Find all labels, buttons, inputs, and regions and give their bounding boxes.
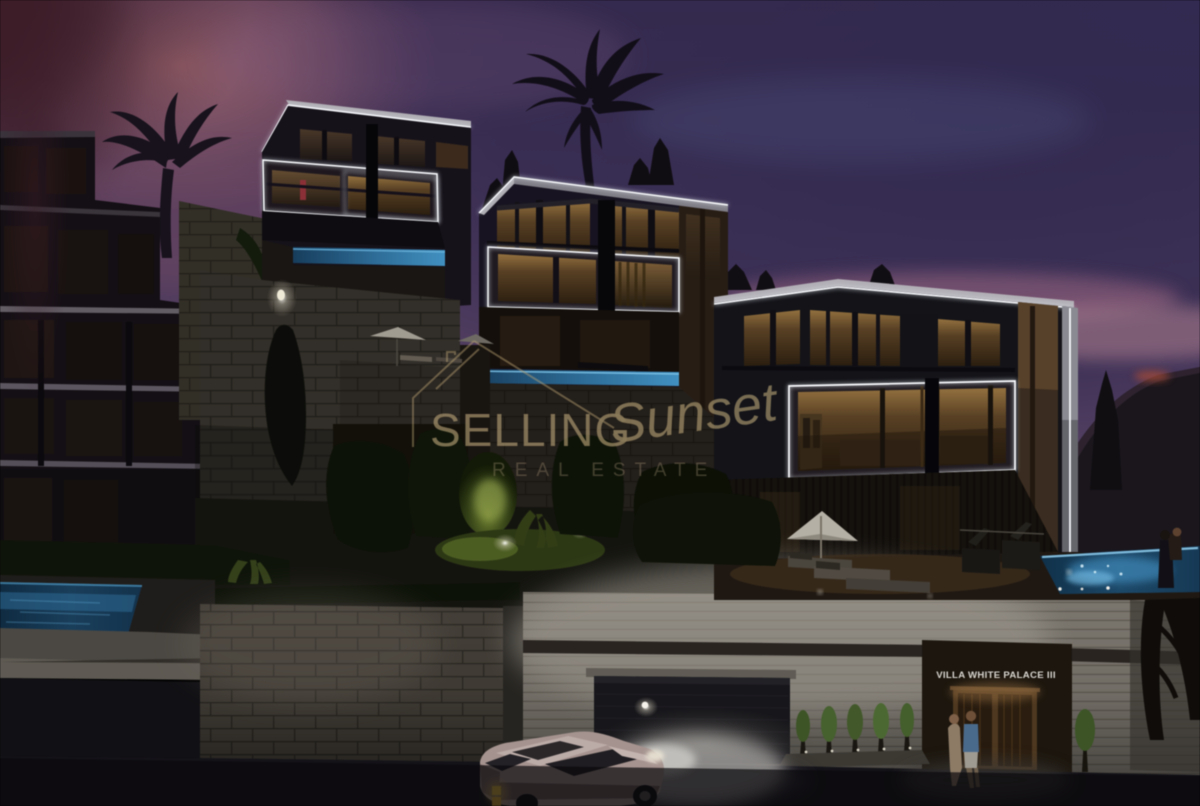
svg-text:REAL ESTATE: REAL ESTATE	[492, 460, 716, 481]
svg-text:SELLING: SELLING	[430, 404, 631, 456]
svg-text:VILLA WHITE PALACE III: VILLA WHITE PALACE III	[936, 670, 1056, 681]
